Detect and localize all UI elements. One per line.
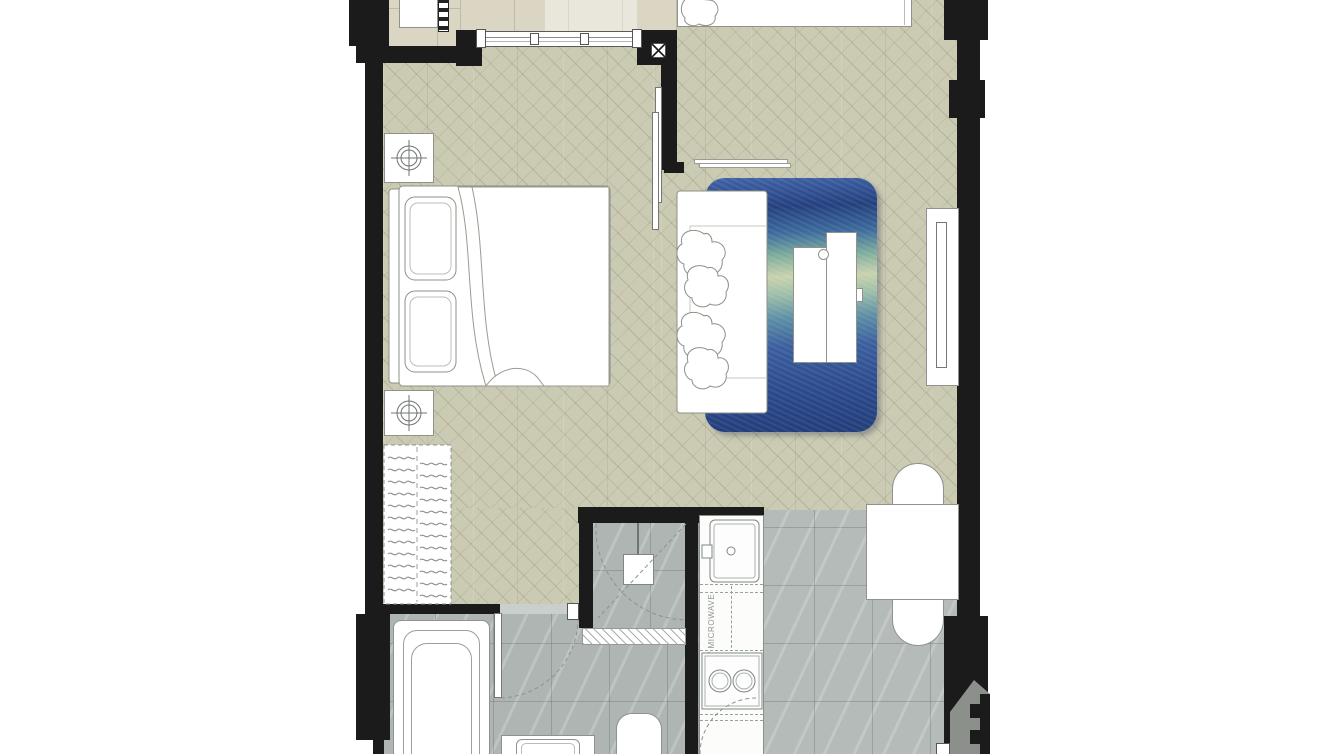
wall-right-top-column: [944, 0, 988, 40]
window-mullion: [580, 33, 589, 45]
coffee-table-right: [826, 232, 857, 363]
wall-left: [365, 46, 383, 614]
table-lamp-icon: [384, 388, 434, 438]
wall-fixture: [567, 603, 579, 620]
wall-shelf-edge: [699, 163, 791, 168]
wall-top-left-column: [349, 0, 389, 46]
coffee-table-tab: [856, 288, 863, 302]
bathroom-door-swing: [498, 610, 582, 702]
double-bed: [388, 184, 612, 388]
dining-table: [866, 504, 959, 600]
window-frame-end: [632, 29, 642, 48]
balcony-rack: [438, 0, 449, 32]
coffee-table-left: [793, 247, 827, 363]
shower-curb: [582, 628, 686, 645]
table-lamp-icon: [384, 133, 434, 183]
window-glass-line: [485, 37, 635, 38]
wall-partition-cap: [664, 162, 684, 173]
entrance-door-swing: [696, 694, 816, 754]
window-glass-line-2: [485, 41, 635, 42]
wardrobe-with-hangers: [383, 444, 452, 605]
bathtub-basin: [411, 643, 472, 754]
wall-right-column-2: [949, 80, 985, 118]
coffee-table-cup: [818, 249, 829, 260]
sliding-window: [480, 31, 640, 47]
kitchen-sink: [700, 517, 764, 587]
wall-left-bottom-tail: [373, 740, 384, 754]
air-conditioner-unit: [399, 0, 438, 28]
counter-joint: [731, 586, 732, 648]
tv-icon: [936, 222, 947, 368]
sliding-door-panel: [652, 112, 659, 230]
wall-partition: [661, 65, 677, 170]
balcony-light-tile: [545, 0, 637, 31]
floor-plan-canvas: W/ MICROWAVE: [0, 0, 1342, 754]
toilet: [616, 713, 662, 754]
window-mullion: [530, 33, 539, 45]
shaft-symbol-icon: [650, 42, 667, 59]
top-console-divider: [904, 0, 905, 25]
wall-left-bottom-column: [356, 614, 390, 740]
watermark-logo: [940, 616, 990, 754]
wall-balcony-bottom: [383, 46, 460, 63]
washbasin-inner: [521, 743, 575, 754]
wall-bathroom-top: [377, 604, 500, 614]
sofa: [676, 190, 768, 414]
bench-pillow: [679, 0, 729, 26]
shower-screen-swing: [590, 520, 690, 628]
window-frame-end: [476, 29, 486, 48]
